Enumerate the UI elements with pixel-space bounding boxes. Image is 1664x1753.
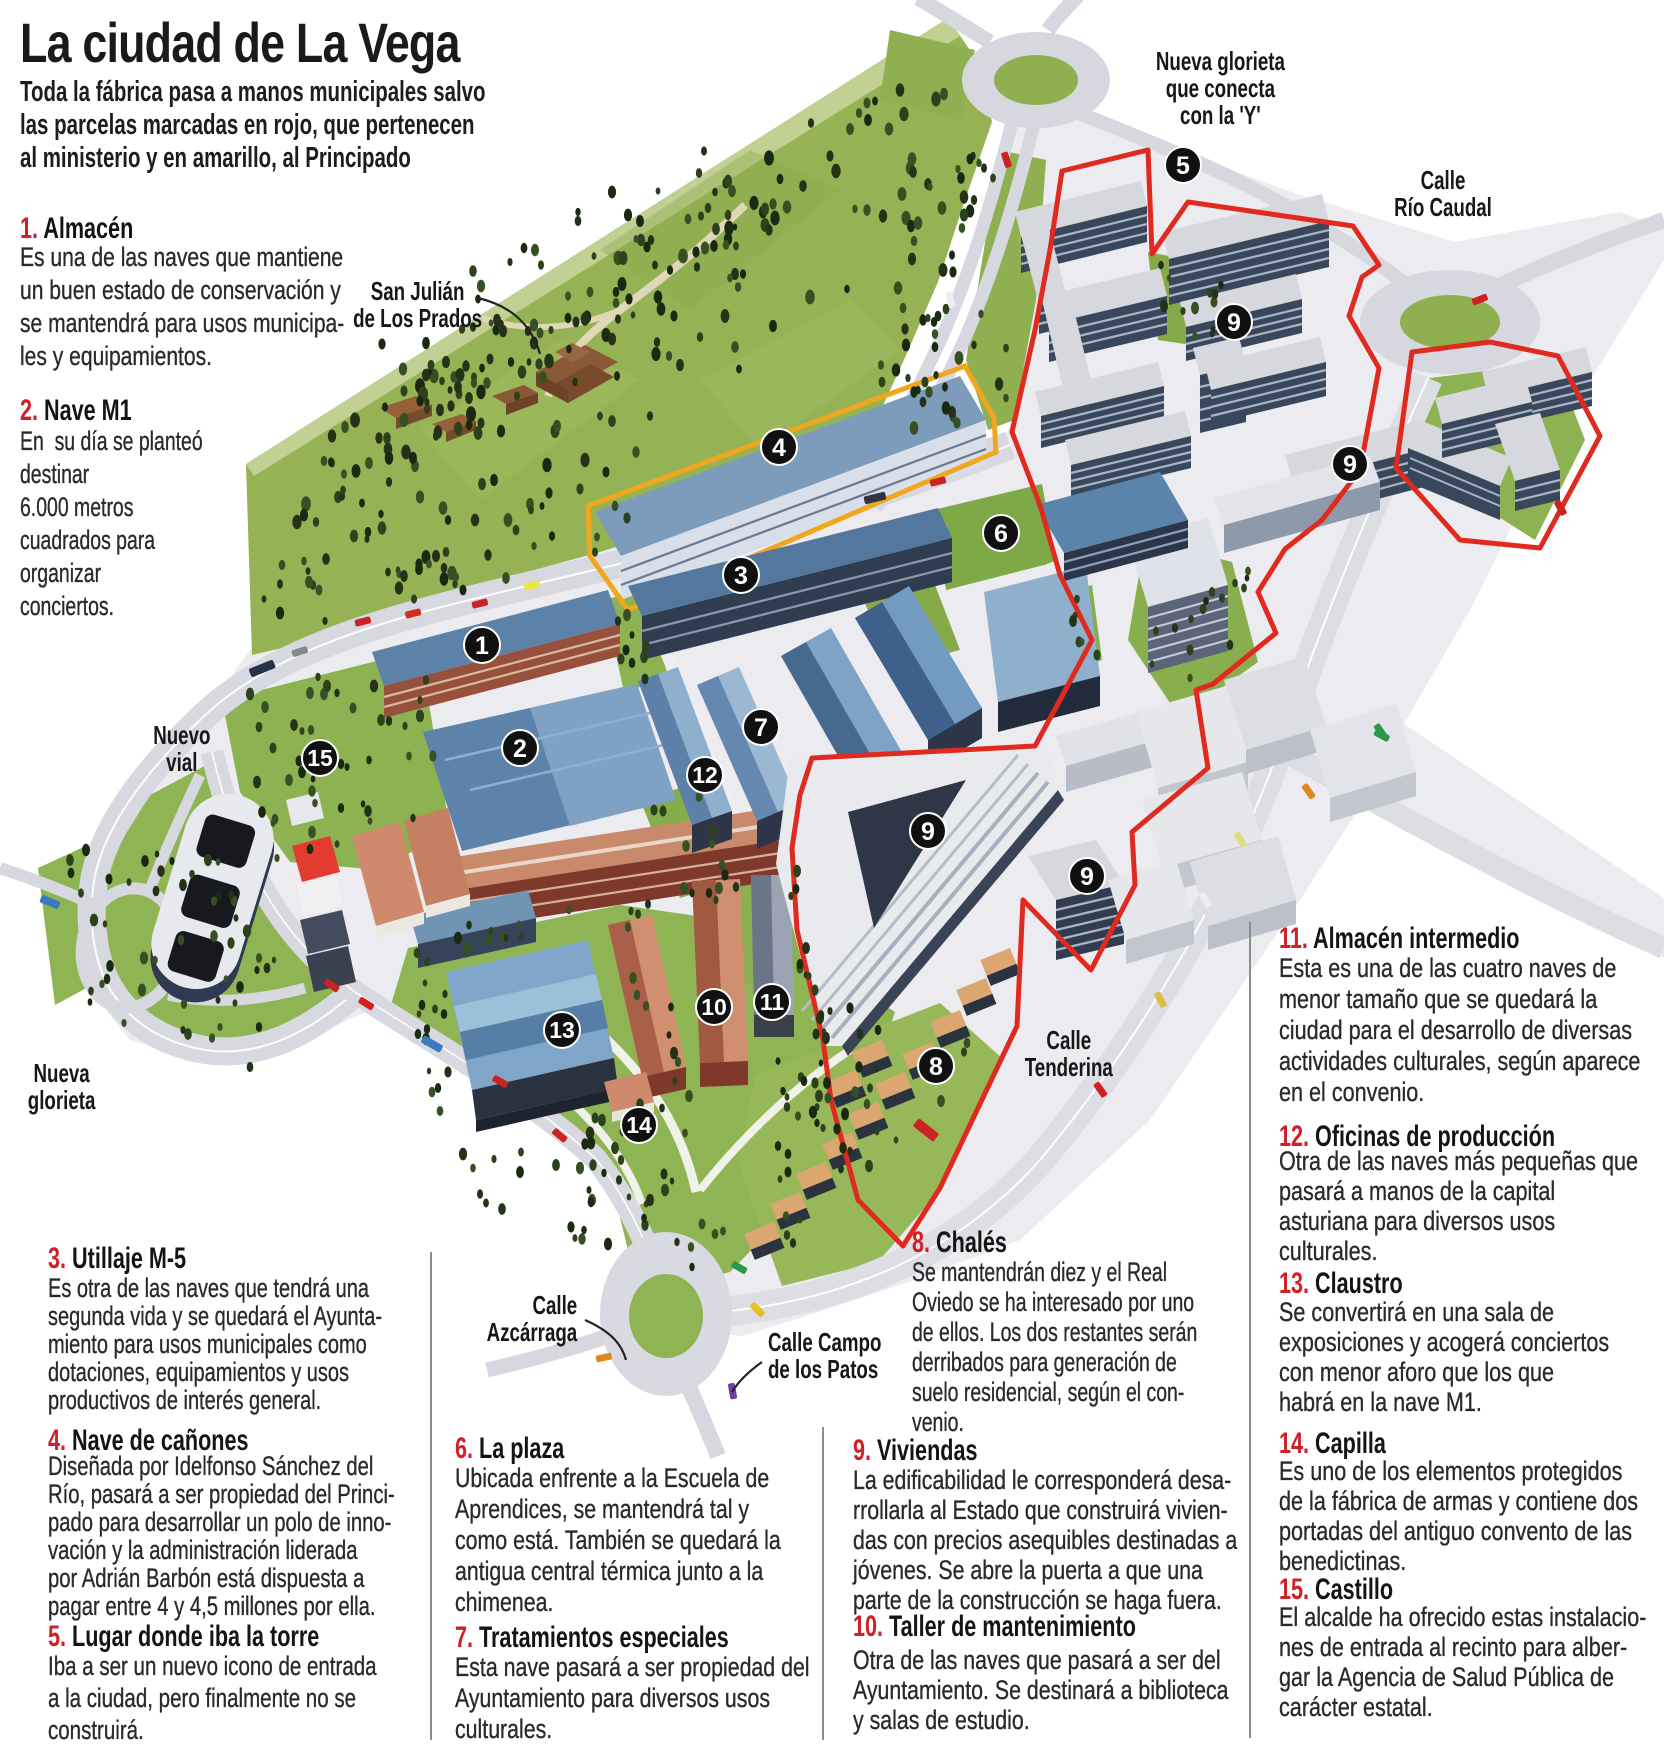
svg-text:9: 9 bbox=[1343, 451, 1357, 479]
svg-text:4: 4 bbox=[772, 434, 786, 462]
svg-text:10: 10 bbox=[701, 994, 727, 1020]
svg-text:12: 12 bbox=[692, 762, 718, 788]
svg-text:3: 3 bbox=[734, 562, 748, 590]
svg-text:9: 9 bbox=[1080, 863, 1094, 891]
svg-text:5: 5 bbox=[1176, 152, 1190, 180]
svg-text:8: 8 bbox=[929, 1053, 943, 1081]
svg-text:2: 2 bbox=[513, 735, 527, 763]
svg-text:11: 11 bbox=[760, 989, 785, 1015]
svg-text:14: 14 bbox=[626, 1112, 652, 1138]
svg-text:13: 13 bbox=[549, 1017, 575, 1043]
svg-text:9: 9 bbox=[1227, 309, 1241, 337]
svg-text:6: 6 bbox=[994, 520, 1008, 548]
svg-text:9: 9 bbox=[921, 818, 935, 846]
svg-text:1: 1 bbox=[475, 632, 489, 660]
svg-text:7: 7 bbox=[754, 714, 768, 742]
svg-text:15: 15 bbox=[307, 745, 333, 771]
